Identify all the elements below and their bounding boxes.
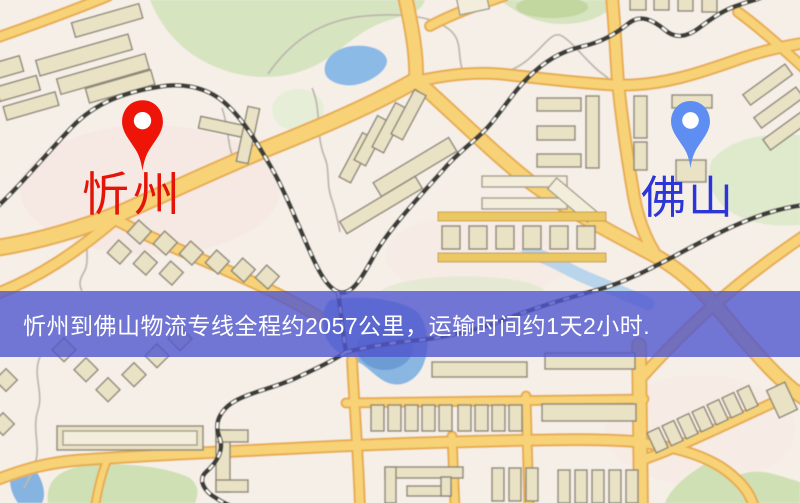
route-info-text: 忻州到佛山物流专线全程约2057公里，运输时间约1天2小时. <box>23 307 650 341</box>
map-background <box>0 0 800 503</box>
map-screenshot: 忻州 佛山 忻州到佛山物流专线全程约2057公里，运输时间约1天2小时. <box>0 0 800 503</box>
origin-label: 忻州 <box>82 172 184 219</box>
route-info-banner: 忻州到佛山物流专线全程约2057公里，运输时间约1天2小时. <box>0 291 800 357</box>
destination-pin-icon <box>668 100 713 172</box>
destination-marker[interactable] <box>668 100 713 172</box>
origin-marker[interactable] <box>119 96 166 178</box>
destination-label: 佛山 <box>641 175 735 220</box>
origin-pin-icon <box>119 96 166 178</box>
